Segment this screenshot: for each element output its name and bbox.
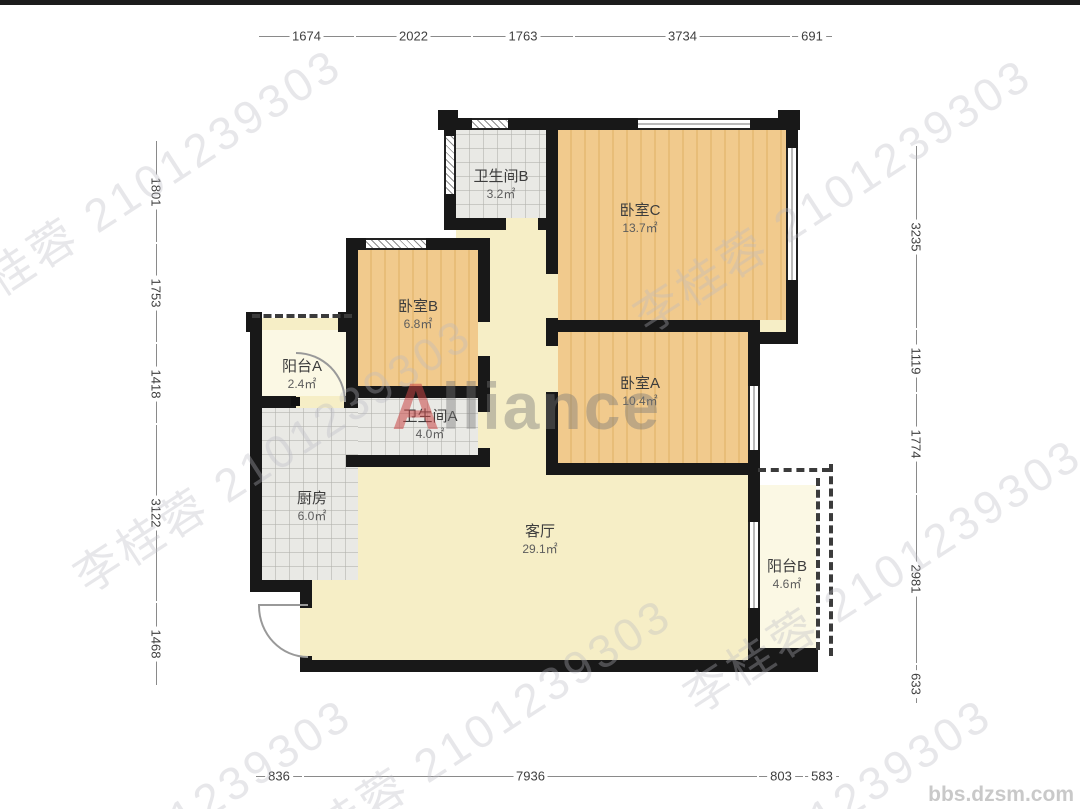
door-hinge [291, 397, 300, 406]
wall [748, 475, 760, 522]
dim-label: 7936 [513, 769, 548, 784]
wall [250, 396, 296, 408]
dim-label: 836 [265, 769, 293, 784]
dim-label: 633 [909, 670, 924, 698]
dim-top-5: 691 [791, 28, 833, 44]
dim-bottom-1: 836 [255, 768, 303, 784]
wall [346, 455, 490, 467]
dim-top-1: 1674 [258, 28, 355, 44]
wall [478, 238, 490, 322]
dim-label: 1119 [909, 345, 924, 378]
bath-b-floor [456, 130, 546, 218]
window [786, 148, 798, 280]
balcony-b-railing-dashed [829, 464, 833, 656]
dim-label: 3122 [149, 496, 164, 531]
wall [546, 230, 558, 274]
wall [250, 580, 312, 592]
top-black-bar [0, 0, 1080, 5]
floorplan-image: 卫生间B 3.2㎡ 卧室C 13.7㎡ 卧室B 6.8㎡ 阳台A 2.4㎡ 卫生… [0, 0, 1080, 809]
dim-left-4: 3122 [148, 424, 164, 602]
bath-a-floor [358, 398, 478, 455]
window [638, 118, 750, 130]
site-credit: bbs.dzsm.com [928, 783, 1074, 807]
dim-right-1: 3235 [908, 145, 924, 329]
kitchen-floor [262, 408, 358, 580]
dim-bottom-2: 7936 [303, 768, 758, 784]
bed-a-floor [558, 332, 748, 463]
dim-label: 691 [798, 29, 826, 44]
dim-left-5: 1468 [148, 602, 164, 686]
balcony-sliding-door [748, 522, 760, 608]
dim-bottom-4: 583 [804, 768, 840, 784]
dim-right-3: 1774 [908, 393, 924, 494]
wall [346, 386, 490, 398]
window [748, 386, 760, 450]
dim-right-2: 1119 [908, 329, 924, 393]
dim-label: 1674 [289, 29, 324, 44]
wall [250, 320, 262, 592]
dim-left-2: 1753 [148, 243, 164, 343]
balcony-b-floor [760, 485, 816, 648]
wall [478, 398, 490, 412]
dim-label: 803 [767, 769, 795, 784]
dim-label: 1753 [149, 276, 164, 311]
dim-top-3: 1763 [472, 28, 574, 44]
dim-label: 2981 [909, 562, 924, 597]
dim-left-1: 1801 [148, 140, 164, 243]
dim-label: 3235 [909, 220, 924, 255]
wall [546, 118, 558, 230]
balcony-b-railing-dashed [758, 468, 830, 472]
wall [546, 463, 760, 475]
wall [300, 660, 760, 672]
wall [748, 608, 760, 672]
dim-label: 1774 [909, 426, 924, 461]
diagonal-watermark: 李桂蓉 2101239303 [0, 29, 353, 336]
dim-label: 3734 [665, 29, 700, 44]
dim-right-4: 2981 [908, 494, 924, 664]
dim-label: 1763 [506, 29, 541, 44]
wall [760, 648, 818, 672]
dim-left-3: 1418 [148, 343, 164, 424]
wall [546, 320, 760, 332]
dim-right-5: 633 [908, 664, 924, 704]
dim-label: 583 [808, 769, 836, 784]
bed-b-floor [358, 250, 478, 386]
window [444, 136, 456, 194]
window [472, 118, 508, 130]
dim-bottom-3: 803 [758, 768, 804, 784]
wall [344, 396, 358, 408]
entry-door-arc [258, 606, 308, 658]
bed-c-floor [558, 130, 786, 320]
window [366, 238, 426, 250]
dim-label: 2022 [396, 29, 431, 44]
dim-label: 1468 [149, 627, 164, 662]
dim-label: 1801 [149, 174, 164, 209]
balcony-a-railing-dashed [252, 314, 352, 318]
diagonal-watermark: 李桂蓉 2101239303 [0, 679, 363, 809]
dim-label: 1418 [149, 366, 164, 401]
dim-top-4: 3734 [574, 28, 791, 44]
wall [546, 332, 558, 346]
wall [538, 218, 558, 230]
dim-top-2: 2022 [355, 28, 472, 44]
balcony-b-railing-dashed [816, 478, 820, 650]
wall [444, 218, 506, 230]
living-floor-main [300, 470, 760, 672]
